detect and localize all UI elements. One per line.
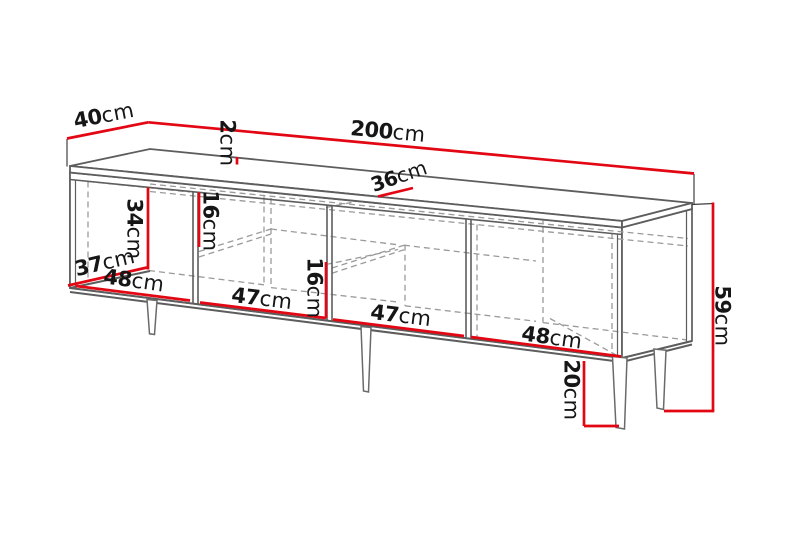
dim-value: 59 (711, 285, 735, 313)
dim-total-height-label: 59cm (712, 285, 733, 346)
dim-shelf-gap-upper-label: 16cm (200, 190, 221, 251)
leg-front-left (147, 300, 157, 335)
dim-unit: cm (303, 286, 327, 319)
dim-unit: cm (258, 286, 294, 314)
dim-unit: cm (130, 268, 166, 296)
dim-value: 2 (216, 119, 240, 133)
leg-back-right (654, 349, 666, 410)
dim-unit: cm (199, 219, 223, 252)
tv-stand-dimension-diagram: 40cm 200cm 2cm 36cm 16cm 34cm 16cm 37cm … (0, 0, 800, 533)
witness-height-connector (692, 204, 714, 205)
dim-shelf-gap-lower-label: 16cm (304, 257, 325, 318)
dim-value: 47 (230, 283, 261, 310)
dim-leg-height-label: 20cm (561, 359, 582, 420)
dim-value: 16 (199, 190, 223, 218)
dim-value: 200 (349, 116, 393, 144)
dim-unit: cm (392, 120, 427, 147)
dim-value: 16 (303, 257, 327, 285)
leg-front-middle (361, 327, 371, 393)
dim-unit: cm (548, 325, 584, 353)
dim-value: 47 (369, 300, 400, 327)
dim-unit: cm (397, 303, 433, 331)
dim-unit: cm (711, 314, 735, 347)
dim-value: 48 (520, 321, 551, 349)
dim-top-thickness-label: 2cm (217, 119, 238, 166)
dim-unit: cm (560, 388, 584, 421)
leg-front-right (613, 357, 628, 430)
right-side-face (622, 209, 692, 358)
dim-value: 48 (102, 264, 133, 292)
dim-value: 34 (123, 198, 147, 226)
dim-value: 20 (560, 359, 584, 387)
dim-unit: cm (216, 134, 240, 167)
